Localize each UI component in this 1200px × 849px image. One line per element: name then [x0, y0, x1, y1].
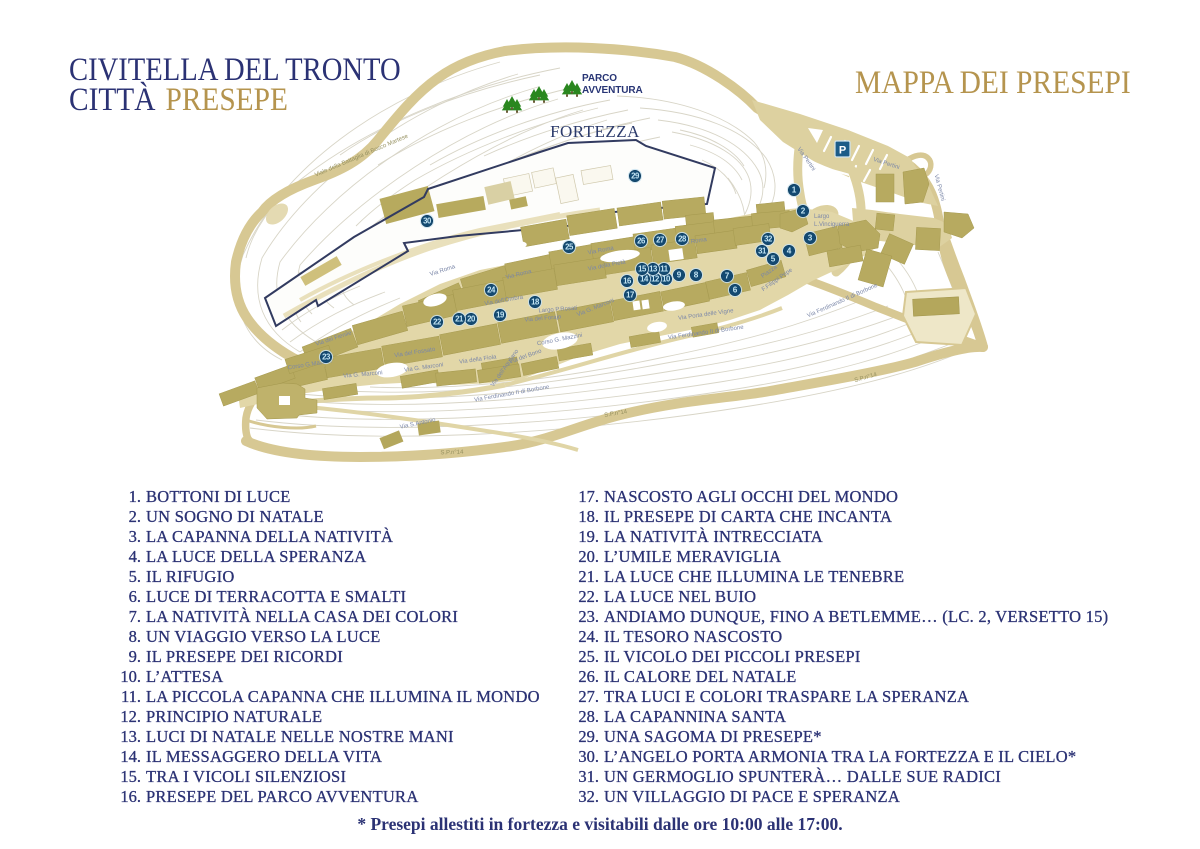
svg-text:17: 17 — [626, 291, 634, 300]
svg-text:S.P.n°14: S.P.n°14 — [440, 450, 464, 457]
svg-text:L.Vinciguerra: L.Vinciguerra — [814, 222, 850, 228]
svg-text:13: 13 — [649, 265, 658, 274]
svg-text:Viale della Battaglia di Bosco: Viale della Battaglia di Bosco Martese — [314, 133, 410, 178]
svg-text:31: 31 — [758, 247, 767, 256]
svg-text:AVVENTURA: AVVENTURA — [582, 85, 643, 96]
svg-text:11: 11 — [660, 265, 669, 274]
svg-text:29: 29 — [631, 172, 640, 181]
svg-text:23: 23 — [322, 353, 331, 362]
svg-text:P: P — [839, 145, 846, 157]
svg-text:30: 30 — [423, 217, 432, 226]
svg-text:2: 2 — [801, 207, 806, 216]
svg-text:1: 1 — [792, 186, 797, 195]
svg-text:6: 6 — [733, 286, 738, 295]
svg-text:25: 25 — [565, 243, 574, 252]
svg-text:7: 7 — [725, 272, 730, 281]
svg-text:9: 9 — [677, 271, 682, 280]
svg-text:24: 24 — [487, 286, 496, 295]
svg-text:21: 21 — [455, 315, 464, 324]
svg-text:4: 4 — [787, 247, 792, 256]
svg-text:27: 27 — [656, 236, 664, 245]
svg-text:5: 5 — [771, 255, 776, 264]
svg-text:15: 15 — [638, 265, 647, 274]
svg-text:Largo: Largo — [814, 214, 830, 220]
svg-text:16: 16 — [623, 277, 632, 286]
svg-text:28: 28 — [678, 235, 687, 244]
svg-text:20: 20 — [467, 315, 476, 324]
svg-text:19: 19 — [496, 311, 505, 320]
svg-text:3: 3 — [808, 234, 813, 243]
svg-text:FORTEZZA: FORTEZZA — [550, 122, 640, 141]
svg-text:22: 22 — [433, 318, 442, 327]
svg-text:32: 32 — [764, 235, 773, 244]
svg-text:Via Roma: Via Roma — [429, 264, 456, 278]
svg-text:8: 8 — [694, 271, 699, 280]
svg-text:PARCO: PARCO — [582, 73, 617, 84]
svg-text:26: 26 — [637, 237, 646, 246]
svg-text:18: 18 — [531, 298, 540, 307]
